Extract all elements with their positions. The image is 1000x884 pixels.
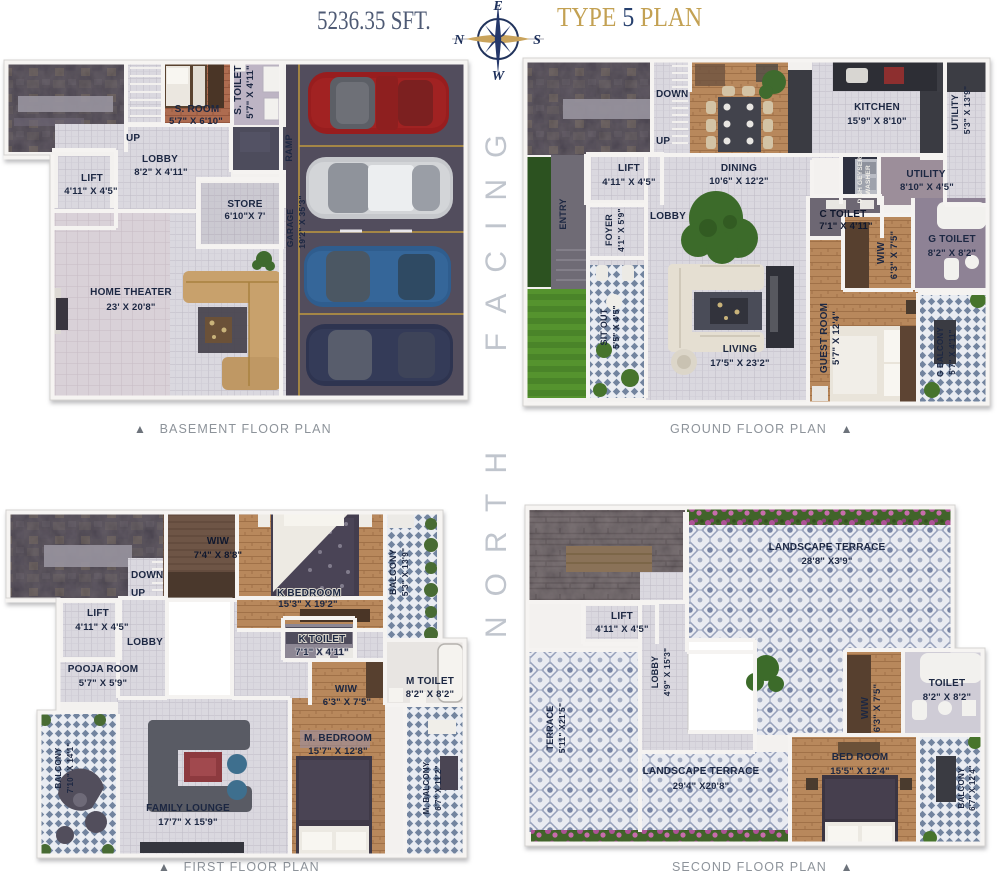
svg-text:FAMILY LOUNGE: FAMILY LOUNGE — [146, 803, 230, 814]
svg-text:23' X 20'8": 23' X 20'8" — [106, 302, 155, 313]
svg-text:M TOILET: M TOILET — [406, 676, 454, 687]
svg-text:UTILITY: UTILITY — [906, 169, 945, 180]
svg-text:5'7" X 4'11": 5'7" X 4'11" — [245, 65, 256, 118]
svg-text:8'10" X 4'5": 8'10" X 4'5" — [900, 182, 954, 193]
svg-text:BALCONY: BALCONY — [957, 767, 966, 808]
svg-text:ENTRY: ENTRY — [558, 198, 568, 229]
svg-text:15'3" X 19'2": 15'3" X 19'2" — [278, 599, 337, 610]
svg-text:S. ROOM: S. ROOM — [175, 104, 220, 115]
svg-text:WIW: WIW — [335, 684, 358, 695]
svg-text:G BALCONY: G BALCONY — [936, 327, 945, 377]
svg-text:SIT OUT: SIT OUT — [599, 308, 609, 345]
svg-text:29'4" X20'8": 29'4" X20'8" — [673, 781, 730, 792]
svg-text:6'7" X 11'2": 6'7" X 11'2" — [434, 765, 443, 810]
svg-text:15'5" X 12'4": 15'5" X 12'4" — [830, 766, 889, 777]
svg-text:S: S — [533, 33, 541, 48]
svg-text:4'11" X 4'5": 4'11" X 4'5" — [64, 186, 117, 197]
svg-text:17'5" X 23'2": 17'5" X 23'2" — [710, 358, 769, 369]
svg-text:HOME THEATER: HOME THEATER — [90, 287, 172, 298]
svg-text:W: W — [492, 69, 506, 82]
svg-text:WASHER: WASHER — [865, 165, 872, 195]
svg-text:M. BALCONY: M. BALCONY — [422, 761, 431, 814]
svg-text:LIFT: LIFT — [81, 173, 103, 184]
svg-text:15'7" X 12'8": 15'7" X 12'8" — [308, 746, 367, 757]
svg-text:TOILET: TOILET — [929, 678, 966, 689]
svg-text:5'7" X 12'4": 5'7" X 12'4" — [831, 311, 842, 365]
svg-text:LOBBY: LOBBY — [650, 656, 660, 689]
svg-text:5'11" X21'5": 5'11" X21'5" — [557, 703, 567, 753]
svg-text:BALCONY: BALCONY — [54, 747, 63, 788]
svg-text:5'7" X 6'10": 5'7" X 6'10" — [169, 116, 223, 127]
svg-text:M. BEDROOM: M. BEDROOM — [304, 733, 372, 744]
svg-text:LANDSCAPE TERRACE: LANDSCAPE TERRACE — [643, 766, 760, 777]
svg-text:WIW: WIW — [860, 697, 871, 720]
svg-text:28'8" X3'9": 28'8" X3'9" — [801, 556, 852, 567]
svg-text:UP: UP — [656, 136, 670, 147]
svg-text:GUEST ROOM: GUEST ROOM — [819, 303, 830, 373]
svg-text:7'10" X 14'1": 7'10" X 14'1" — [66, 743, 75, 793]
svg-text:LIFT: LIFT — [618, 163, 640, 174]
svg-text:7'1" X 4'11": 7'1" X 4'11" — [295, 647, 348, 658]
svg-text:5'3" X 13'9": 5'3" X 13'9" — [962, 86, 972, 135]
svg-text:6'10"X 7': 6'10"X 7' — [225, 211, 266, 222]
svg-text:5'7" X 4'11": 5'7" X 4'11" — [948, 329, 957, 374]
svg-text:KITCHEN: KITCHEN — [854, 102, 900, 113]
svg-text:DOWN: DOWN — [656, 89, 688, 100]
svg-text:LANDSCAPE TERRACE: LANDSCAPE TERRACE — [769, 542, 886, 553]
svg-text:E: E — [492, 0, 502, 14]
svg-text:10'6" X 12'2": 10'6" X 12'2" — [709, 176, 768, 187]
svg-text:TERRACE: TERRACE — [545, 706, 555, 751]
svg-text:POOJA ROOM: POOJA ROOM — [68, 664, 139, 675]
svg-text:15'9" X 8'10": 15'9" X 8'10" — [847, 116, 906, 127]
svg-text:7'4" X 8'8": 7'4" X 8'8" — [194, 550, 242, 561]
svg-text:FOYER: FOYER — [604, 214, 614, 246]
svg-text:RAMP: RAMP — [284, 134, 294, 161]
svg-text:19'2" X 35'3": 19'2" X 35'3" — [297, 195, 307, 248]
svg-text:4'11" X 4'5": 4'11" X 4'5" — [75, 622, 128, 633]
svg-text:UP: UP — [126, 133, 140, 144]
svg-text:G TOILET: G TOILET — [928, 234, 976, 245]
svg-text:4'11" X 4'5": 4'11" X 4'5" — [595, 624, 648, 635]
svg-text:6'3" X 7'5": 6'3" X 7'5" — [889, 231, 900, 279]
svg-text:7'1" X 4'11": 7'1" X 4'11" — [819, 221, 872, 232]
svg-text:LIFT: LIFT — [87, 608, 109, 619]
svg-text:LIFT: LIFT — [611, 611, 633, 622]
svg-text:5'5" X 4'5": 5'5" X 4'5" — [611, 305, 621, 349]
svg-text:5'7" X 5'9": 5'7" X 5'9" — [79, 678, 127, 689]
svg-text:BED ROOM: BED ROOM — [832, 752, 889, 763]
svg-text:WIW: WIW — [207, 536, 230, 547]
svg-text:C TOILET: C TOILET — [820, 209, 867, 220]
svg-text:UP: UP — [131, 588, 145, 599]
svg-text:LOBBY: LOBBY — [142, 154, 178, 165]
svg-text:K TOILET: K TOILET — [299, 634, 346, 645]
svg-text:N: N — [453, 33, 465, 48]
svg-text:GARAGE: GARAGE — [285, 209, 295, 248]
svg-text:6'3" X 7'5": 6'3" X 7'5" — [872, 684, 883, 732]
svg-text:8'2" X 4'11": 8'2" X 4'11" — [134, 167, 187, 178]
svg-text:S. TOILET: S. TOILET — [233, 65, 244, 114]
svg-text:LIVING: LIVING — [723, 344, 758, 355]
svg-text:LOBBY: LOBBY — [127, 637, 163, 648]
svg-text:WIW: WIW — [876, 242, 887, 265]
svg-text:6'7" X 12'4": 6'7" X 12'4" — [968, 765, 977, 811]
svg-text:4'9" X 15'3": 4'9" X 15'3" — [662, 648, 672, 697]
svg-text:DISH GEYSER: DISH GEYSER — [857, 157, 864, 204]
svg-text:8'2" X 8'2": 8'2" X 8'2" — [928, 248, 976, 259]
svg-text:8'2" X 8'2": 8'2" X 8'2" — [406, 689, 454, 700]
svg-text:BALCONY: BALCONY — [388, 549, 398, 595]
svg-text:LOBBY: LOBBY — [650, 211, 686, 222]
svg-text:4'1" X 5'9": 4'1" X 5'9" — [616, 208, 626, 252]
svg-text:5'3" X 13'9": 5'3" X 13'9" — [400, 548, 410, 597]
svg-text:8'2" X 8'2": 8'2" X 8'2" — [923, 692, 971, 703]
svg-text:4'11" X 4'5": 4'11" X 4'5" — [602, 177, 655, 188]
svg-text:6'3" X 7'5": 6'3" X 7'5" — [323, 697, 371, 708]
svg-text:DOWN: DOWN — [131, 570, 163, 581]
svg-text:17'7" X 15'9": 17'7" X 15'9" — [158, 817, 217, 828]
svg-text:STORE: STORE — [227, 199, 262, 210]
svg-text:DINING: DINING — [721, 163, 757, 174]
svg-text:UTILITY: UTILITY — [950, 94, 960, 129]
svg-text:K BEDROOM: K BEDROOM — [277, 588, 341, 599]
